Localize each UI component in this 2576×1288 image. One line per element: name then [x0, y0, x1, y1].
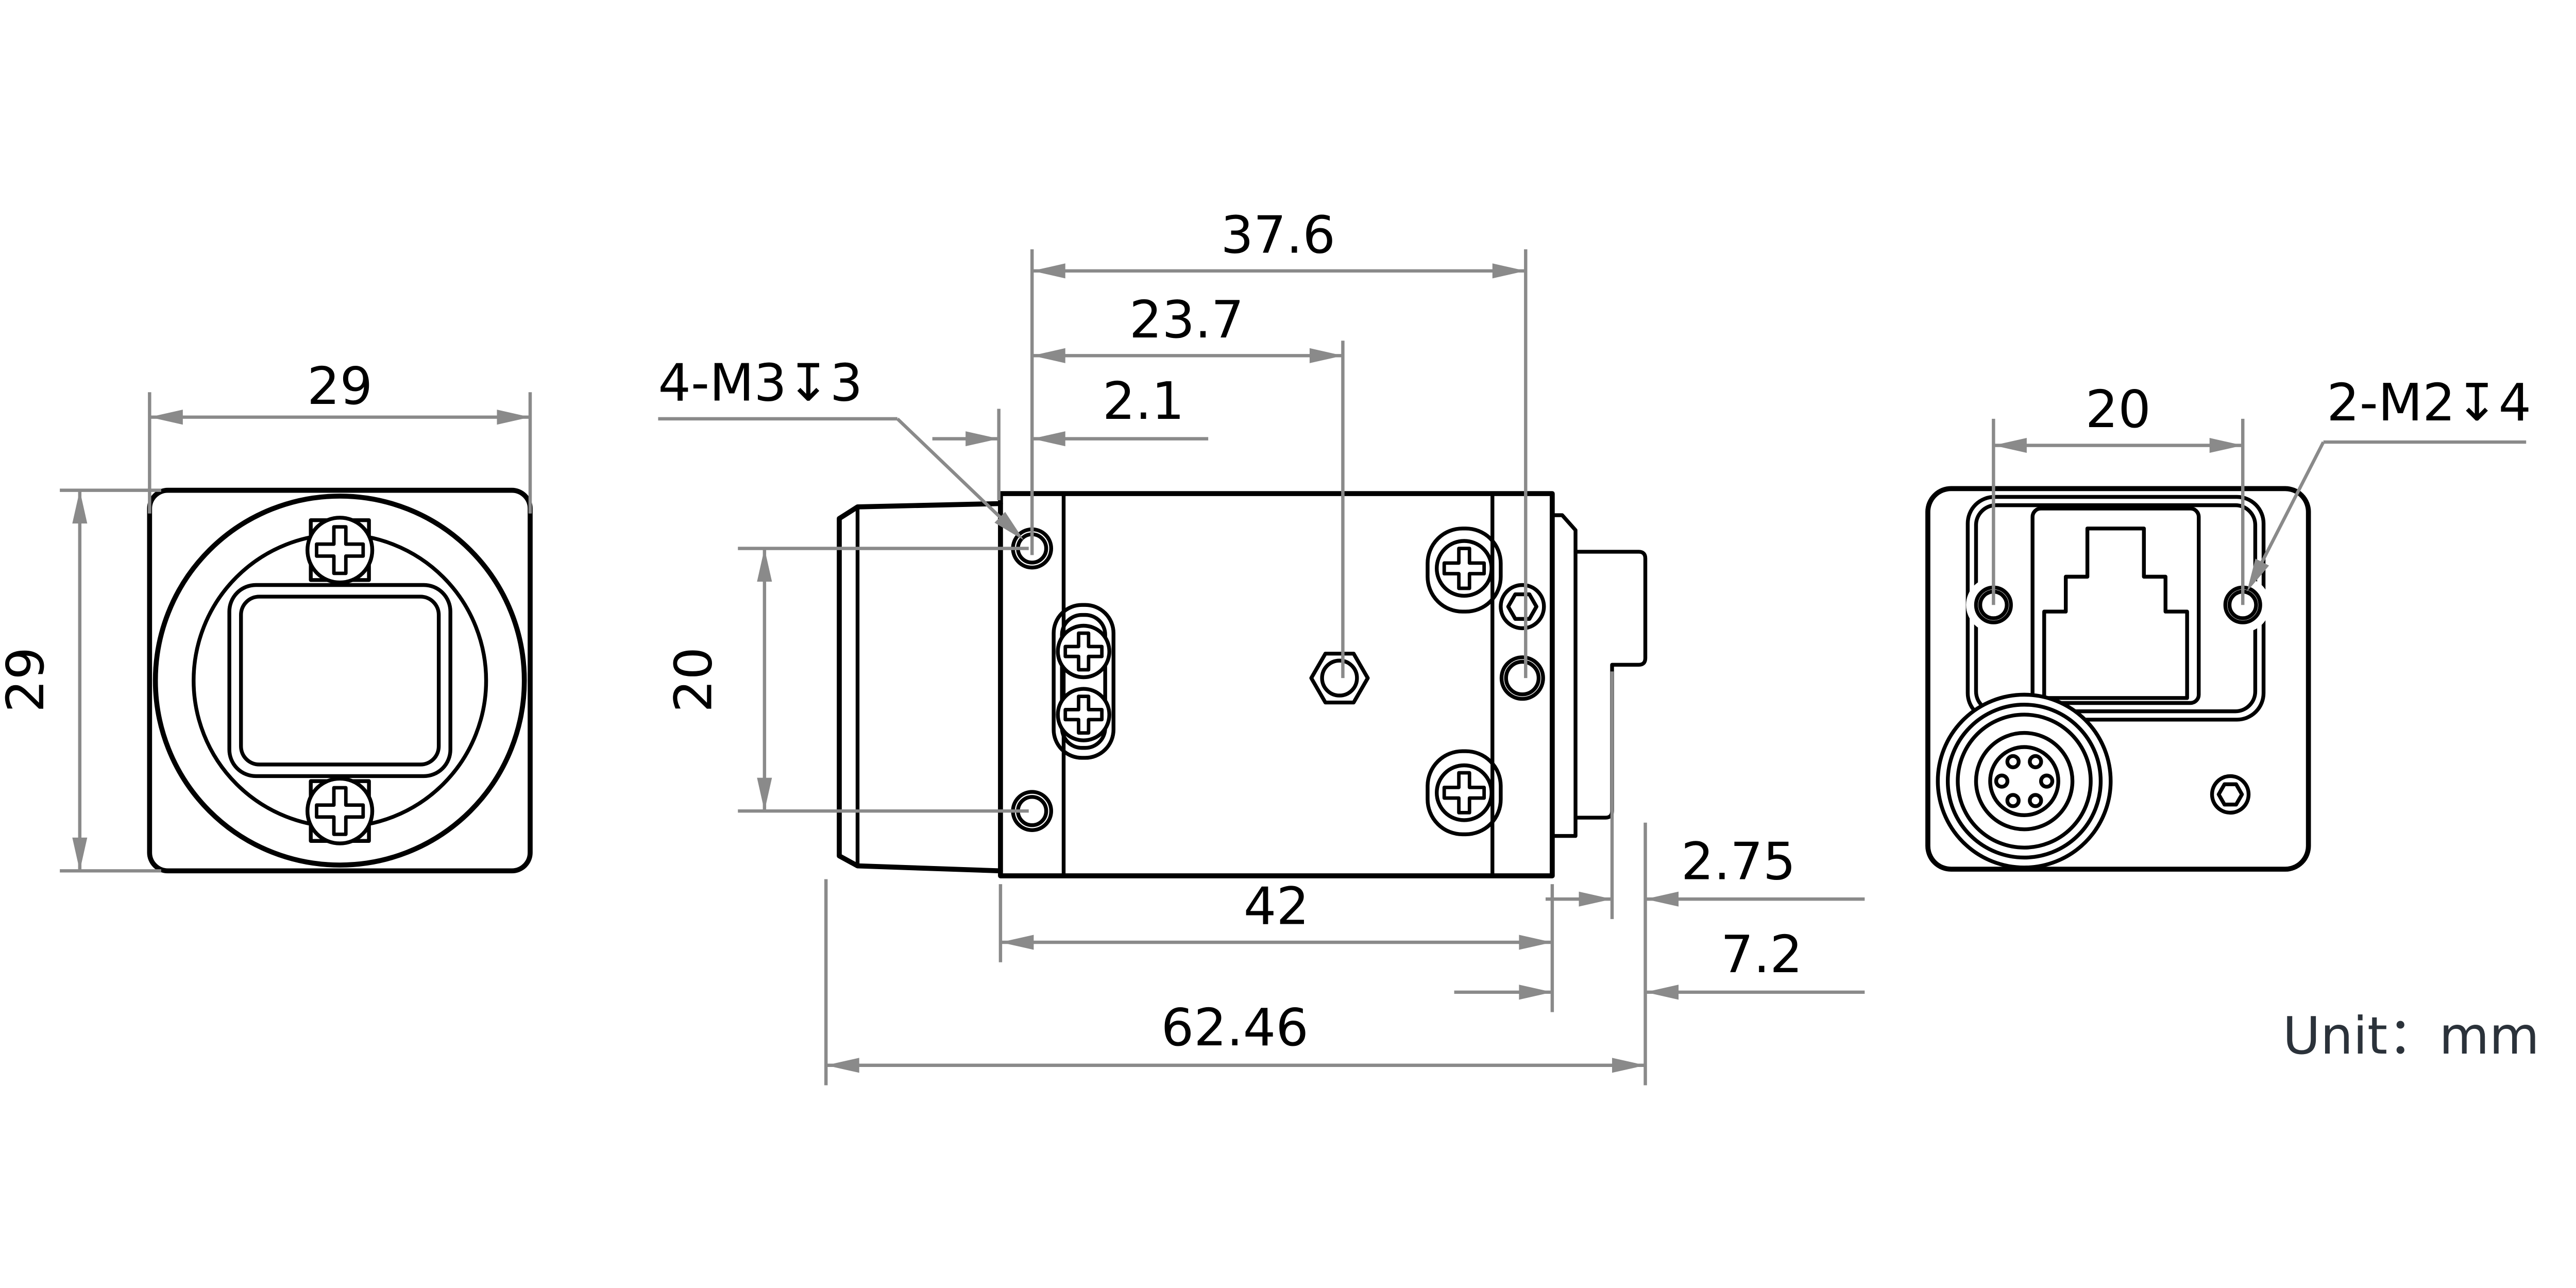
thread-note-m2: 2-M2↧4 — [2247, 372, 2531, 591]
dim-label-rear-20: 20 — [2086, 379, 2151, 439]
dim-label-21: 2.1 — [1103, 371, 1184, 431]
dim-front-height: 29 — [0, 490, 161, 871]
dim-side-72: 7.2 — [1454, 924, 1865, 999]
dim-side-6246: 62.46 — [826, 823, 1645, 1086]
lens-barrel-outline — [839, 503, 1001, 871]
rear-step-strip — [1552, 515, 1575, 836]
rj45-opening — [2032, 509, 2199, 703]
sensor-window-outer — [229, 585, 450, 776]
rear-screw-top — [1428, 529, 1501, 612]
dim-side-275: 2.75 — [1546, 671, 1865, 919]
dim-label-front-height: 29 — [0, 647, 56, 713]
unit-note: Unit：mm — [2283, 1006, 2539, 1066]
front-view — [149, 490, 530, 871]
circular-connector-6pin — [1938, 694, 2110, 867]
dim-side-21: 2.1 — [933, 371, 1208, 500]
side-screw-slot — [1054, 605, 1113, 758]
drawing-page: 29 29 37.6 23.7 — [0, 0, 2576, 1288]
thread-note-m3-label: 4-M3↧3 — [658, 352, 862, 413]
dim-label-237: 23.7 — [1129, 290, 1244, 350]
rear-view — [1928, 488, 2309, 869]
hex-socket-hole — [1501, 585, 1544, 628]
camera-dimension-drawing: 29 29 37.6 23.7 — [0, 0, 2576, 1288]
rear-screw-bottom — [1428, 751, 1501, 834]
dim-label-42: 42 — [1244, 876, 1309, 937]
rj45-ethernet-port — [2032, 509, 2199, 703]
rear-hex-hole — [2212, 776, 2249, 812]
front-top-screw — [308, 518, 372, 583]
dim-label-275: 2.75 — [1681, 831, 1796, 891]
sensor-window-inner — [241, 597, 439, 765]
dim-side-376: 37.6 — [1032, 205, 1526, 678]
dim-label-side-20: 20 — [664, 647, 724, 713]
thread-note-m2-label: 2-M2↧4 — [2327, 372, 2531, 433]
center-mount-hole — [1311, 654, 1368, 703]
thread-note-m3: 4-M3↧3 — [658, 352, 1024, 540]
dim-label-72: 7.2 — [1721, 924, 1803, 985]
dim-side-237: 23.7 — [1032, 290, 1343, 678]
dim-label-376: 37.6 — [1221, 205, 1335, 265]
front-bottom-screw — [308, 778, 372, 843]
dim-side-20: 20 — [664, 549, 1029, 811]
dim-label-6246: 62.46 — [1161, 997, 1309, 1058]
rear-plate-round-hole — [1502, 657, 1544, 699]
dim-label-front-width: 29 — [307, 356, 372, 416]
